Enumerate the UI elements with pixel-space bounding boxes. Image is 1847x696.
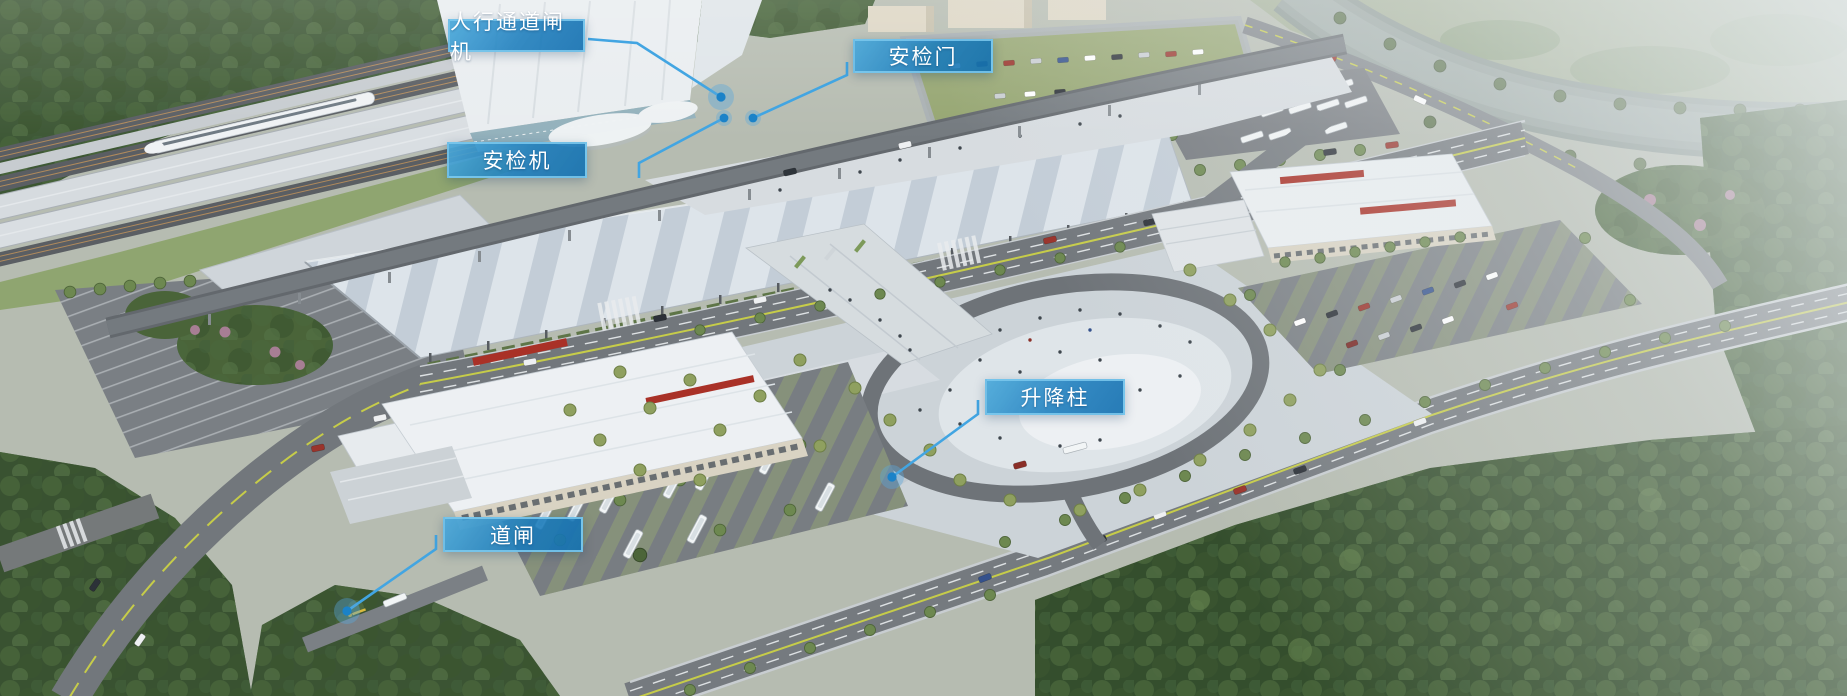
callout-security-scanner: 安检机: [447, 142, 587, 178]
callout-barrier-gate: 道闸: [443, 517, 583, 552]
callout-pedestrian-gate: 人行通道闸机: [448, 19, 585, 52]
station-aerial-banner: 人行通道闸机 安检门 安检机 升降柱 道闸: [0, 0, 1847, 696]
aerial-scene-illustration: [0, 0, 1847, 696]
callout-security-door: 安检门: [853, 39, 993, 73]
fog-overlay: [0, 0, 1847, 696]
callout-lift-bollard: 升降柱: [985, 379, 1125, 415]
